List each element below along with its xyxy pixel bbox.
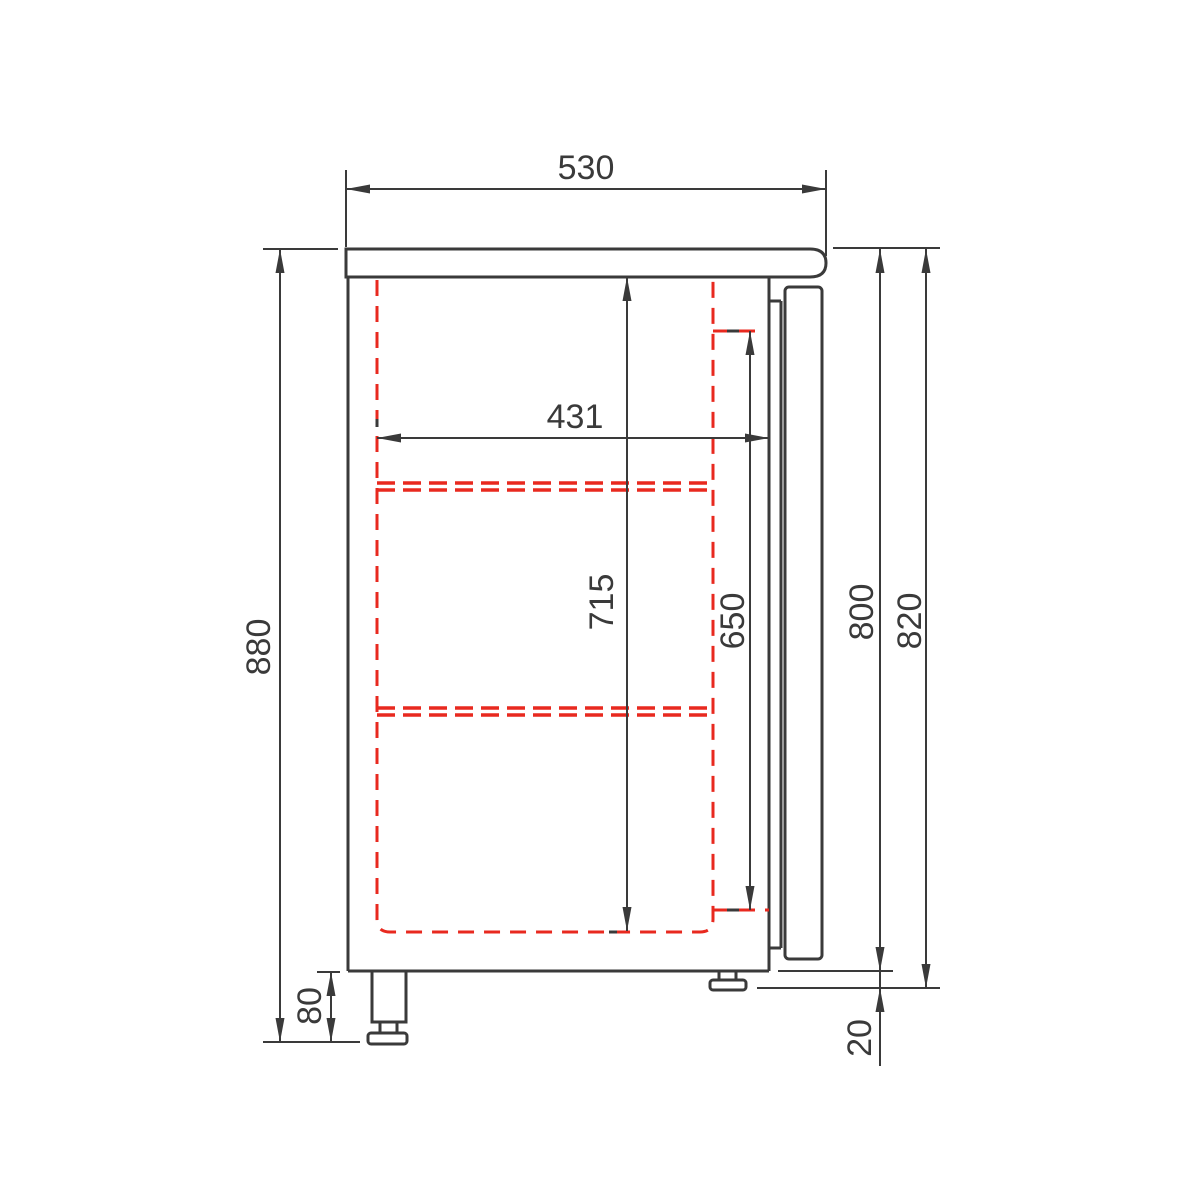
arrowhead — [346, 185, 370, 194]
arrowhead — [276, 249, 285, 273]
cabinet-outline — [346, 249, 826, 1044]
left-foot-stem — [380, 1022, 397, 1033]
left-foot-leg — [372, 971, 406, 1022]
cabinet-side-view-drawing: 530 431 880 80 715 650 800 820 20 — [0, 0, 1200, 1200]
arrowhead — [876, 947, 885, 971]
arrowhead — [876, 988, 885, 1012]
dim-label-530: 530 — [558, 149, 615, 187]
interior-hidden-lines — [377, 280, 769, 932]
dim-label-715: 715 — [583, 574, 621, 631]
arrowhead — [746, 886, 755, 910]
dim-label-20: 20 — [841, 1019, 879, 1057]
arrowhead — [745, 434, 769, 443]
arrowhead — [802, 185, 826, 194]
dim-label-800: 800 — [843, 584, 881, 641]
dim-label-820: 820 — [891, 593, 929, 650]
right-foot-base — [710, 980, 746, 990]
top-panel — [346, 249, 826, 277]
arrowhead — [922, 249, 931, 273]
arrowhead — [922, 964, 931, 988]
interior-liner-outline — [377, 280, 713, 932]
door-gasket-line — [769, 301, 781, 948]
arrowhead — [876, 249, 885, 273]
arrowhead — [623, 277, 632, 301]
dimension-labels: 530 431 880 80 715 650 800 820 20 — [240, 149, 929, 1057]
arrowhead — [623, 907, 632, 931]
dim-label-80: 80 — [291, 987, 329, 1025]
dim-label-880: 880 — [240, 619, 278, 676]
arrowhead — [377, 434, 401, 443]
technical-drawing-canvas: 530 431 880 80 715 650 800 820 20 — [0, 0, 1200, 1200]
shelf-upper — [377, 483, 713, 490]
dim-label-650: 650 — [714, 593, 752, 650]
door-panel — [785, 287, 822, 959]
arrowhead — [746, 331, 755, 355]
shelf-lower — [377, 708, 713, 715]
dim-label-431: 431 — [547, 398, 604, 436]
left-foot-base — [368, 1033, 407, 1044]
arrowhead — [276, 1018, 285, 1042]
